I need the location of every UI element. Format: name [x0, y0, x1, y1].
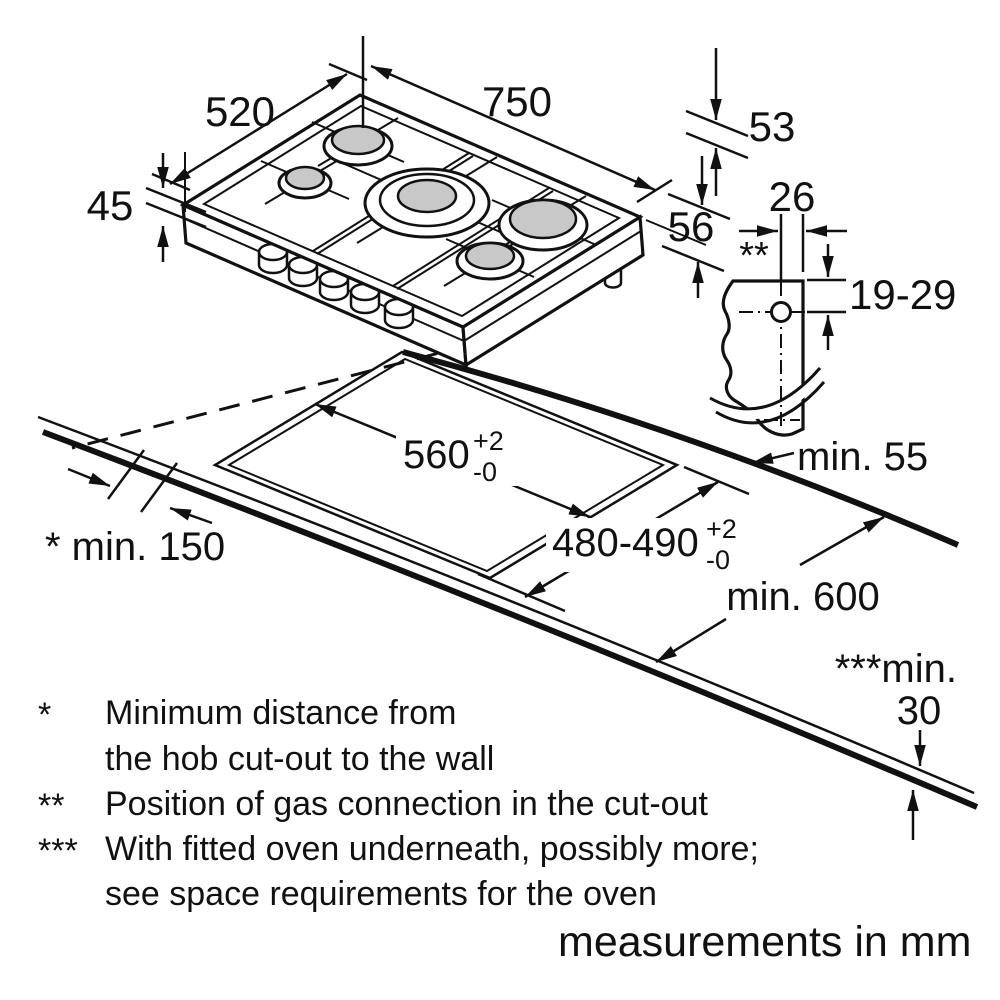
tick-520-top — [329, 64, 367, 80]
units-note: measurements in mm — [558, 918, 971, 966]
label-gas-marker: ** — [739, 235, 769, 277]
footnote-2-line-1: Position of gas connection in the cut-ou… — [105, 785, 708, 823]
burner-wok-center — [365, 169, 489, 237]
label-480-tol-minus: -0 — [706, 545, 730, 575]
leader-min55 — [752, 453, 794, 463]
label-min55: min. 55 — [797, 435, 928, 479]
dim-arrow-min150-left — [170, 508, 212, 523]
label-560-tol-minus: -0 — [473, 457, 497, 487]
label-53: 53 — [749, 103, 796, 150]
label-min150: * min. 150 — [45, 525, 225, 569]
footnote-2-marker: ** — [38, 787, 64, 825]
label-min30-prefix: ***min. — [835, 647, 957, 691]
gas-connection-detail-view — [710, 281, 824, 435]
footnote-1-line-1: Minimum distance from — [105, 694, 456, 732]
label-480-tol-plus: +2 — [706, 514, 737, 544]
burner-small-left — [279, 167, 331, 198]
label-min30-value: 30 — [897, 689, 942, 733]
label-560-tol-plus: +2 — [473, 426, 504, 456]
burner-medium-front — [457, 243, 523, 279]
hob-installation-diagram: 750 520 45 53 56 26 ** 19-29 560 +2 -0 4… — [0, 0, 1000, 1000]
label-19-29: 19-29 — [849, 271, 956, 318]
gas-connection-hole — [772, 303, 791, 322]
footnote-3-marker: *** — [38, 832, 78, 870]
footnote-1-line-2: the hob cut-out to the wall — [105, 740, 494, 778]
footnote-3-line-2: see space requirements for the oven — [105, 875, 657, 913]
footnote-1-marker: * — [38, 696, 51, 734]
label-45: 45 — [87, 182, 134, 229]
label-520: 520 — [205, 88, 275, 135]
label-480-490: 480-490 — [552, 521, 699, 565]
label-26: 26 — [769, 173, 816, 220]
label-750: 750 — [482, 78, 552, 125]
diagram-page: 750 520 45 53 56 26 ** 19-29 560 +2 -0 4… — [0, 0, 1000, 1000]
label-min600: min. 600 — [726, 575, 879, 619]
burner-large-right — [499, 200, 587, 250]
dim-arrow-min150-right — [68, 469, 110, 486]
dim-arrow-min600-down — [656, 619, 726, 662]
ext-480-right — [684, 467, 749, 494]
dim-arrow-min600-up — [800, 517, 884, 565]
label-56: 56 — [668, 203, 715, 250]
label-560: 560 — [403, 433, 470, 477]
footnotes: * Minimum distance from the hob cut-out … — [38, 694, 759, 913]
burner-medium-back — [324, 126, 392, 165]
footnote-3-line-1: With fitted oven underneath, possibly mo… — [105, 830, 759, 868]
hob-drawing — [183, 95, 643, 365]
